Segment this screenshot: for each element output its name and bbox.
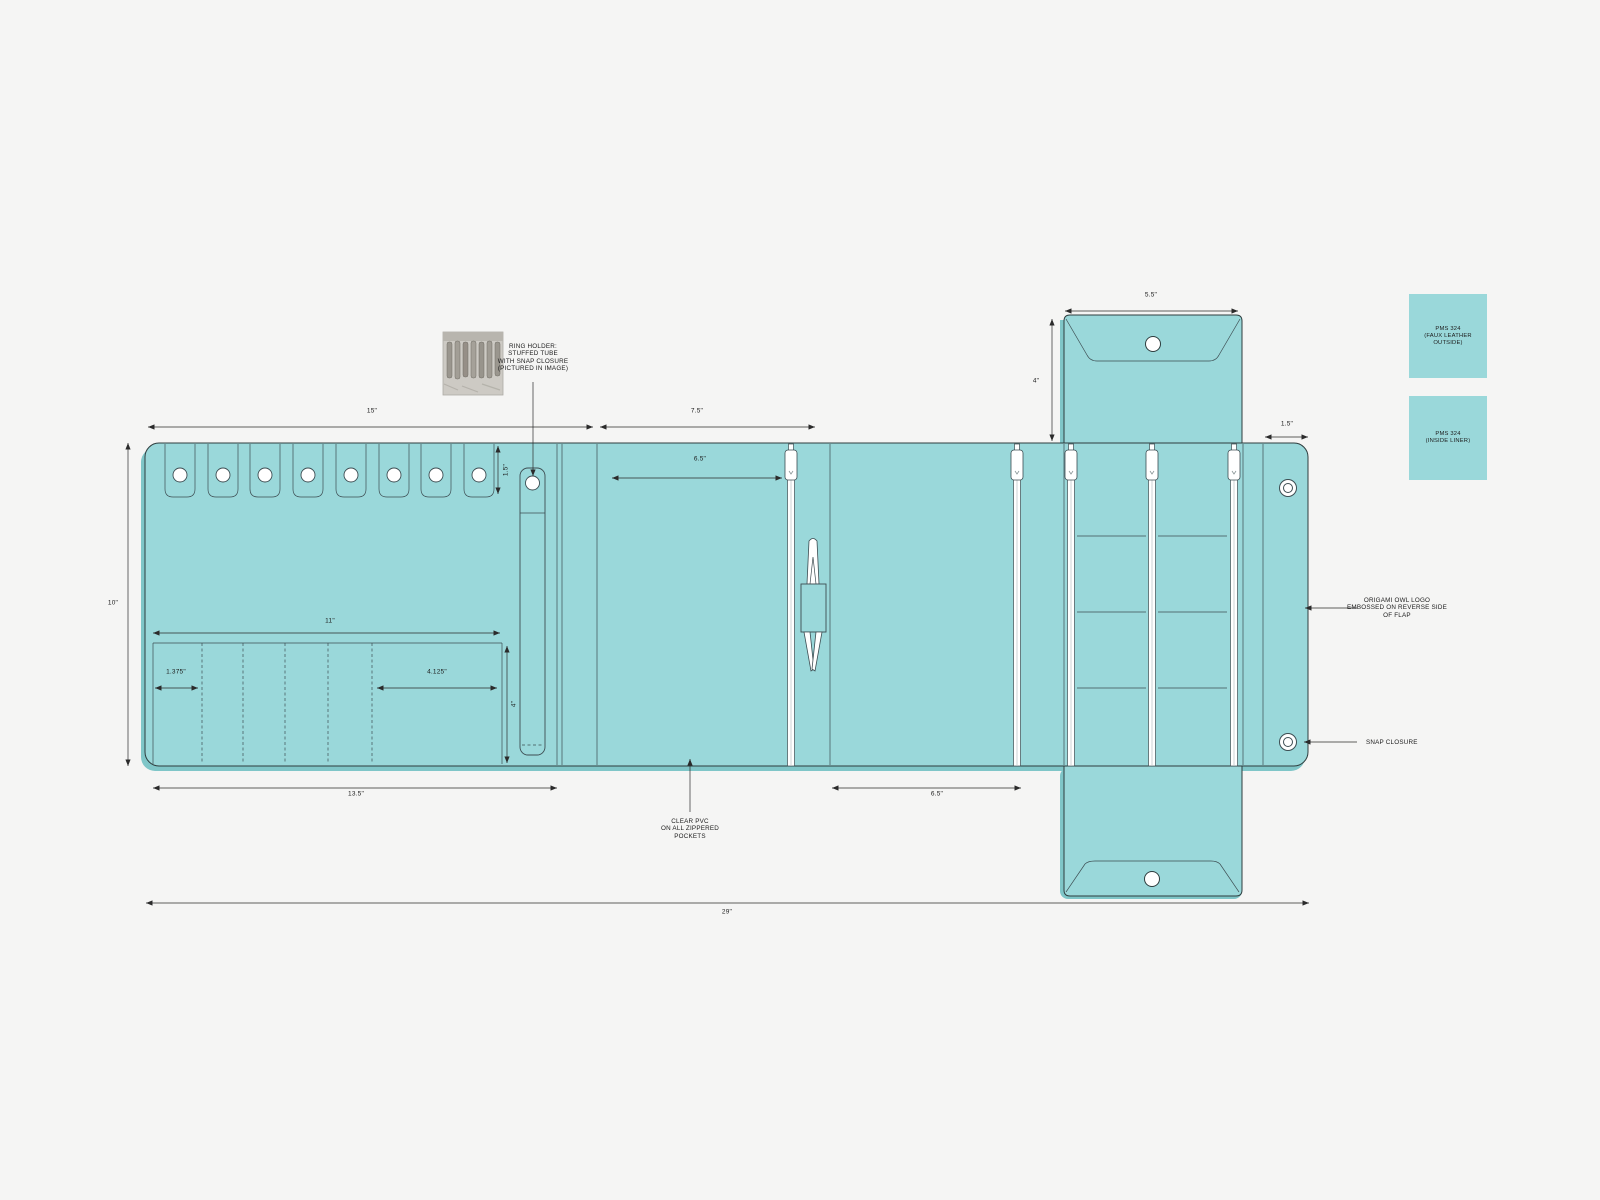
tab-hole-icon [387,468,401,482]
annotation-line: ORIGAMI OWL LOGO [1347,597,1447,604]
dim-label-pocket-row-width: 11" [325,618,335,625]
dim-label-pocket-large-width: 4.125" [427,669,447,676]
color-swatch-faux-leather: PMS 324 (FAUX LEATHER OUTSIDE) [1409,294,1487,378]
clear-pvc-annotation: CLEAR PVC ON ALL ZIPPERED POCKETS [661,818,719,840]
swatch-label: PMS 324 [1435,431,1460,438]
dim-label-tab-height: 1.5" [503,464,510,476]
dim-label-end-flap-width: 1.5" [1281,421,1293,428]
dim-label-total-width: 29" [722,909,732,916]
top-flap-snap-icon [1146,337,1161,352]
color-swatch-inside-liner: PMS 324 (INSIDE LINER) [1409,396,1487,480]
snap-closure-annotation: SNAP CLOSURE [1366,739,1418,746]
snap-closure-icon [1280,480,1297,497]
annotation-line: WITH SNAP CLOSURE [498,358,568,365]
dim-label-zip-top-width: 6.5" [694,456,706,463]
dim-label-panel-height: 10" [108,600,118,607]
logo-annotation: ORIGAMI OWL LOGO EMBOSSED ON REVERSE SID… [1347,597,1447,619]
dim-label-pocket-height: 4" [511,701,518,707]
snap-closure-icon [1280,734,1297,751]
swatch-label: (FAUX LEATHER OUTSIDE) [1409,333,1487,347]
dim-label-pocket-small-width: 1.375" [166,669,186,676]
dim-label-panel-left-width: 15" [367,408,377,415]
spec-sheet: 15" 7.5" 10" 1.5" 11" 1.375" 4.125" 4" 1… [0,0,1600,1200]
main-panel [145,443,1308,766]
tab-hole-icon [258,468,272,482]
annotation-line: RING HOLDER: [498,343,568,350]
ring-holder-photo [443,332,503,395]
bottom-flap [1064,766,1242,896]
top-flap [1064,315,1242,443]
tab-hole-icon [216,468,230,482]
annotation-line: STUFFED TUBE [498,350,568,357]
dim-label-left-bottom-width: 13.5" [348,791,364,798]
tab-hole-icon [173,468,187,482]
tab-hole-icon [301,468,315,482]
dim-label-zip-bottom-width: 6.5" [931,791,943,798]
bottom-flap-snap-icon [1145,872,1160,887]
tab-hole-icon [344,468,358,482]
dim-label-panel-mid-width: 7.5" [691,408,703,415]
dim-label-flap-height: 4" [1033,378,1039,385]
annotation-line: EMBOSSED ON REVERSE SIDE [1347,604,1447,611]
annotation-line: POCKETS [661,833,719,840]
ring-holder-annotation: RING HOLDER: STUFFED TUBE WITH SNAP CLOS… [498,343,568,372]
annotation-line: OF FLAP [1347,612,1447,619]
tab-hole-icon [429,468,443,482]
ring-holder-snap-icon [526,476,540,490]
swatch-label: PMS 324 [1435,326,1460,333]
ring-holder-tube [520,468,545,755]
dim-label-flap-width: 5.5" [1145,292,1157,299]
annotation-line: (PICTURED IN IMAGE) [498,365,568,372]
tweezers-holder [801,584,826,632]
annotation-line: CLEAR PVC [661,818,719,825]
swatch-label: (INSIDE LINER) [1426,438,1471,445]
tab-hole-icon [472,468,486,482]
annotation-line: ON ALL ZIPPERED [661,825,719,832]
